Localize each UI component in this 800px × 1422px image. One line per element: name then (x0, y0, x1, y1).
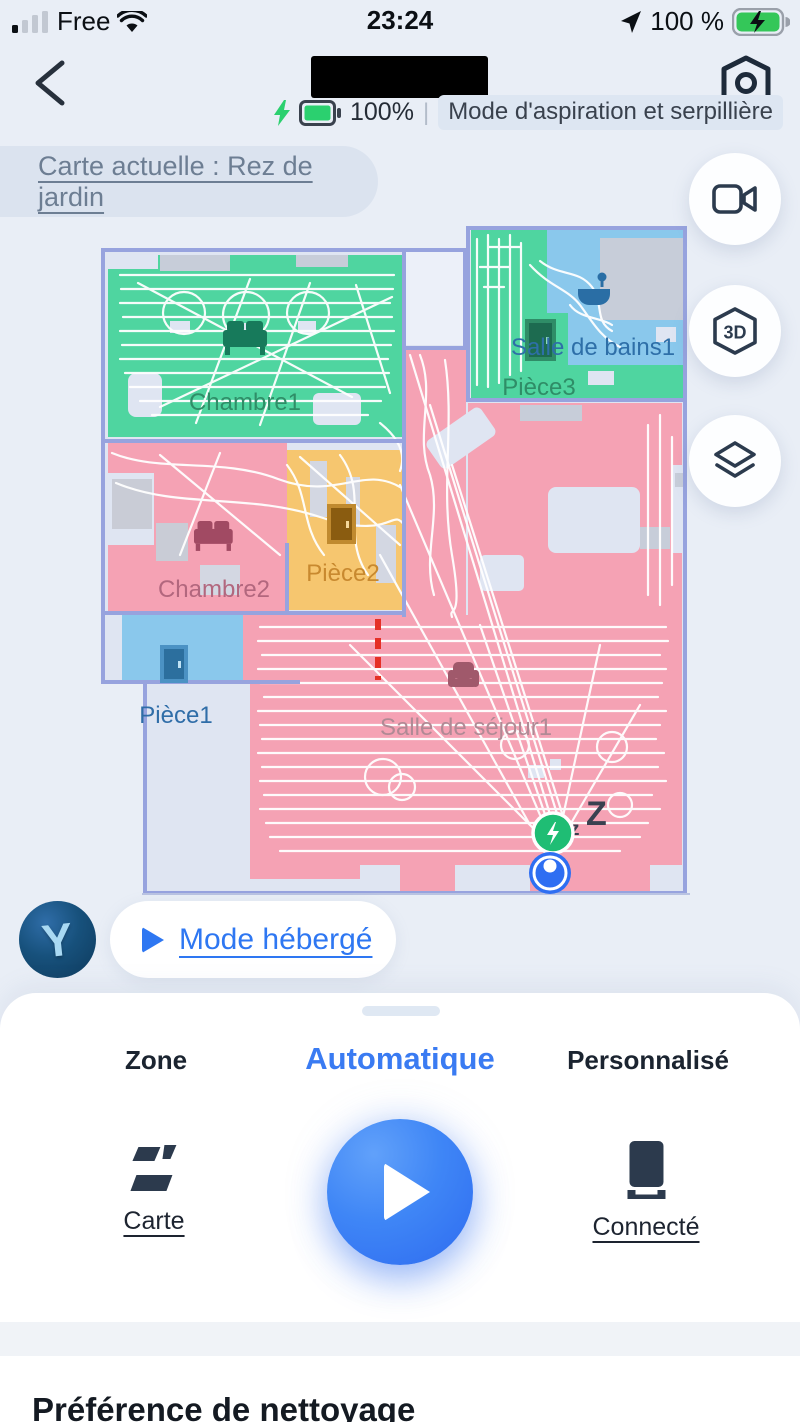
video-camera-button[interactable] (689, 153, 781, 245)
separator: | (423, 99, 429, 127)
battery-percent-label: 100 % (650, 6, 724, 37)
start-play-icon (384, 1163, 430, 1221)
start-cleaning-button[interactable] (327, 1119, 473, 1265)
room-label-bains: Salle de bains1 (511, 334, 675, 361)
map-action-button[interactable]: Carte (123, 1143, 184, 1236)
sheet-drag-handle[interactable] (362, 1006, 440, 1016)
bottom-sheet: Zone Automatique Personnalisé Carte Conn… (0, 993, 800, 1422)
room-label-piece3: Pièce3 (502, 374, 575, 401)
battery-charging-icon (732, 8, 790, 36)
room-label-chambre2: Chambre2 (158, 576, 270, 603)
room-piece3-bains[interactable] (471, 230, 683, 398)
room-label-sejour: Salle de séjour1 (380, 714, 552, 741)
3d-view-button[interactable]: 3D (689, 285, 781, 377)
robot-battery-label: 100% (350, 98, 414, 127)
host-mode-button[interactable]: Mode hébergé (110, 901, 396, 978)
layers-icon (712, 439, 758, 483)
svg-text:3D: 3D (723, 323, 746, 343)
play-triangle-icon (142, 927, 164, 953)
tab-zone[interactable]: Zone (125, 1045, 187, 1076)
cleaning-preference-title: Préférence de nettoyage (32, 1391, 415, 1422)
charging-bolt-icon (274, 100, 290, 126)
location-arrow-icon (620, 10, 642, 34)
door-icon-piece1 (162, 647, 186, 681)
host-mode-label: Mode hébergé (179, 923, 372, 957)
avatar-letter: Y (39, 911, 75, 968)
room-label-piece1: Pièce1 (139, 702, 212, 729)
3d-hexagon-icon: 3D (711, 306, 759, 356)
tab-personnalise[interactable]: Personnalisé (567, 1045, 729, 1076)
robot-status-row: 100% | Mode d'aspiration et serpillière (274, 95, 783, 130)
floor-map[interactable]: Chambre1 Salle de bains1 Pièce3 Chambre2… (100, 225, 692, 895)
room-label-chambre1: Chambre1 (189, 389, 301, 416)
video-camera-icon (712, 182, 758, 216)
section-divider (0, 1322, 800, 1356)
door-icon-piece2 (329, 506, 354, 542)
robot-avatar[interactable]: Y (19, 901, 96, 978)
current-map-pill[interactable]: Carte actuelle : Rez de jardin (0, 146, 378, 217)
back-button[interactable] (28, 58, 70, 108)
tab-automatique[interactable]: Automatique (305, 1041, 494, 1077)
app-screen: Free 23:24 100 % (0, 0, 800, 1422)
map-shadow (142, 893, 690, 895)
dock-action-button[interactable]: Connecté (592, 1141, 699, 1242)
cleaning-mode-badge: Mode d'aspiration et serpillière (438, 95, 783, 130)
map-tiles-icon (126, 1143, 182, 1193)
sleep-z-big: Z (586, 795, 607, 833)
dock-station-icon (620, 1141, 672, 1199)
robot-battery-icon (299, 100, 341, 126)
redacted-device-name (311, 56, 488, 98)
dock-action-label: Connecté (592, 1213, 699, 1242)
status-bar: Free 23:24 100 % (0, 0, 800, 42)
current-map-label: Carte actuelle : Rez de jardin (38, 151, 378, 213)
map-action-label: Carte (123, 1207, 184, 1236)
room-label-piece2: Pièce2 (306, 560, 379, 587)
charging-dock-marker[interactable] (533, 813, 573, 853)
layers-button[interactable] (689, 415, 781, 507)
robot-position-marker[interactable] (529, 852, 571, 894)
